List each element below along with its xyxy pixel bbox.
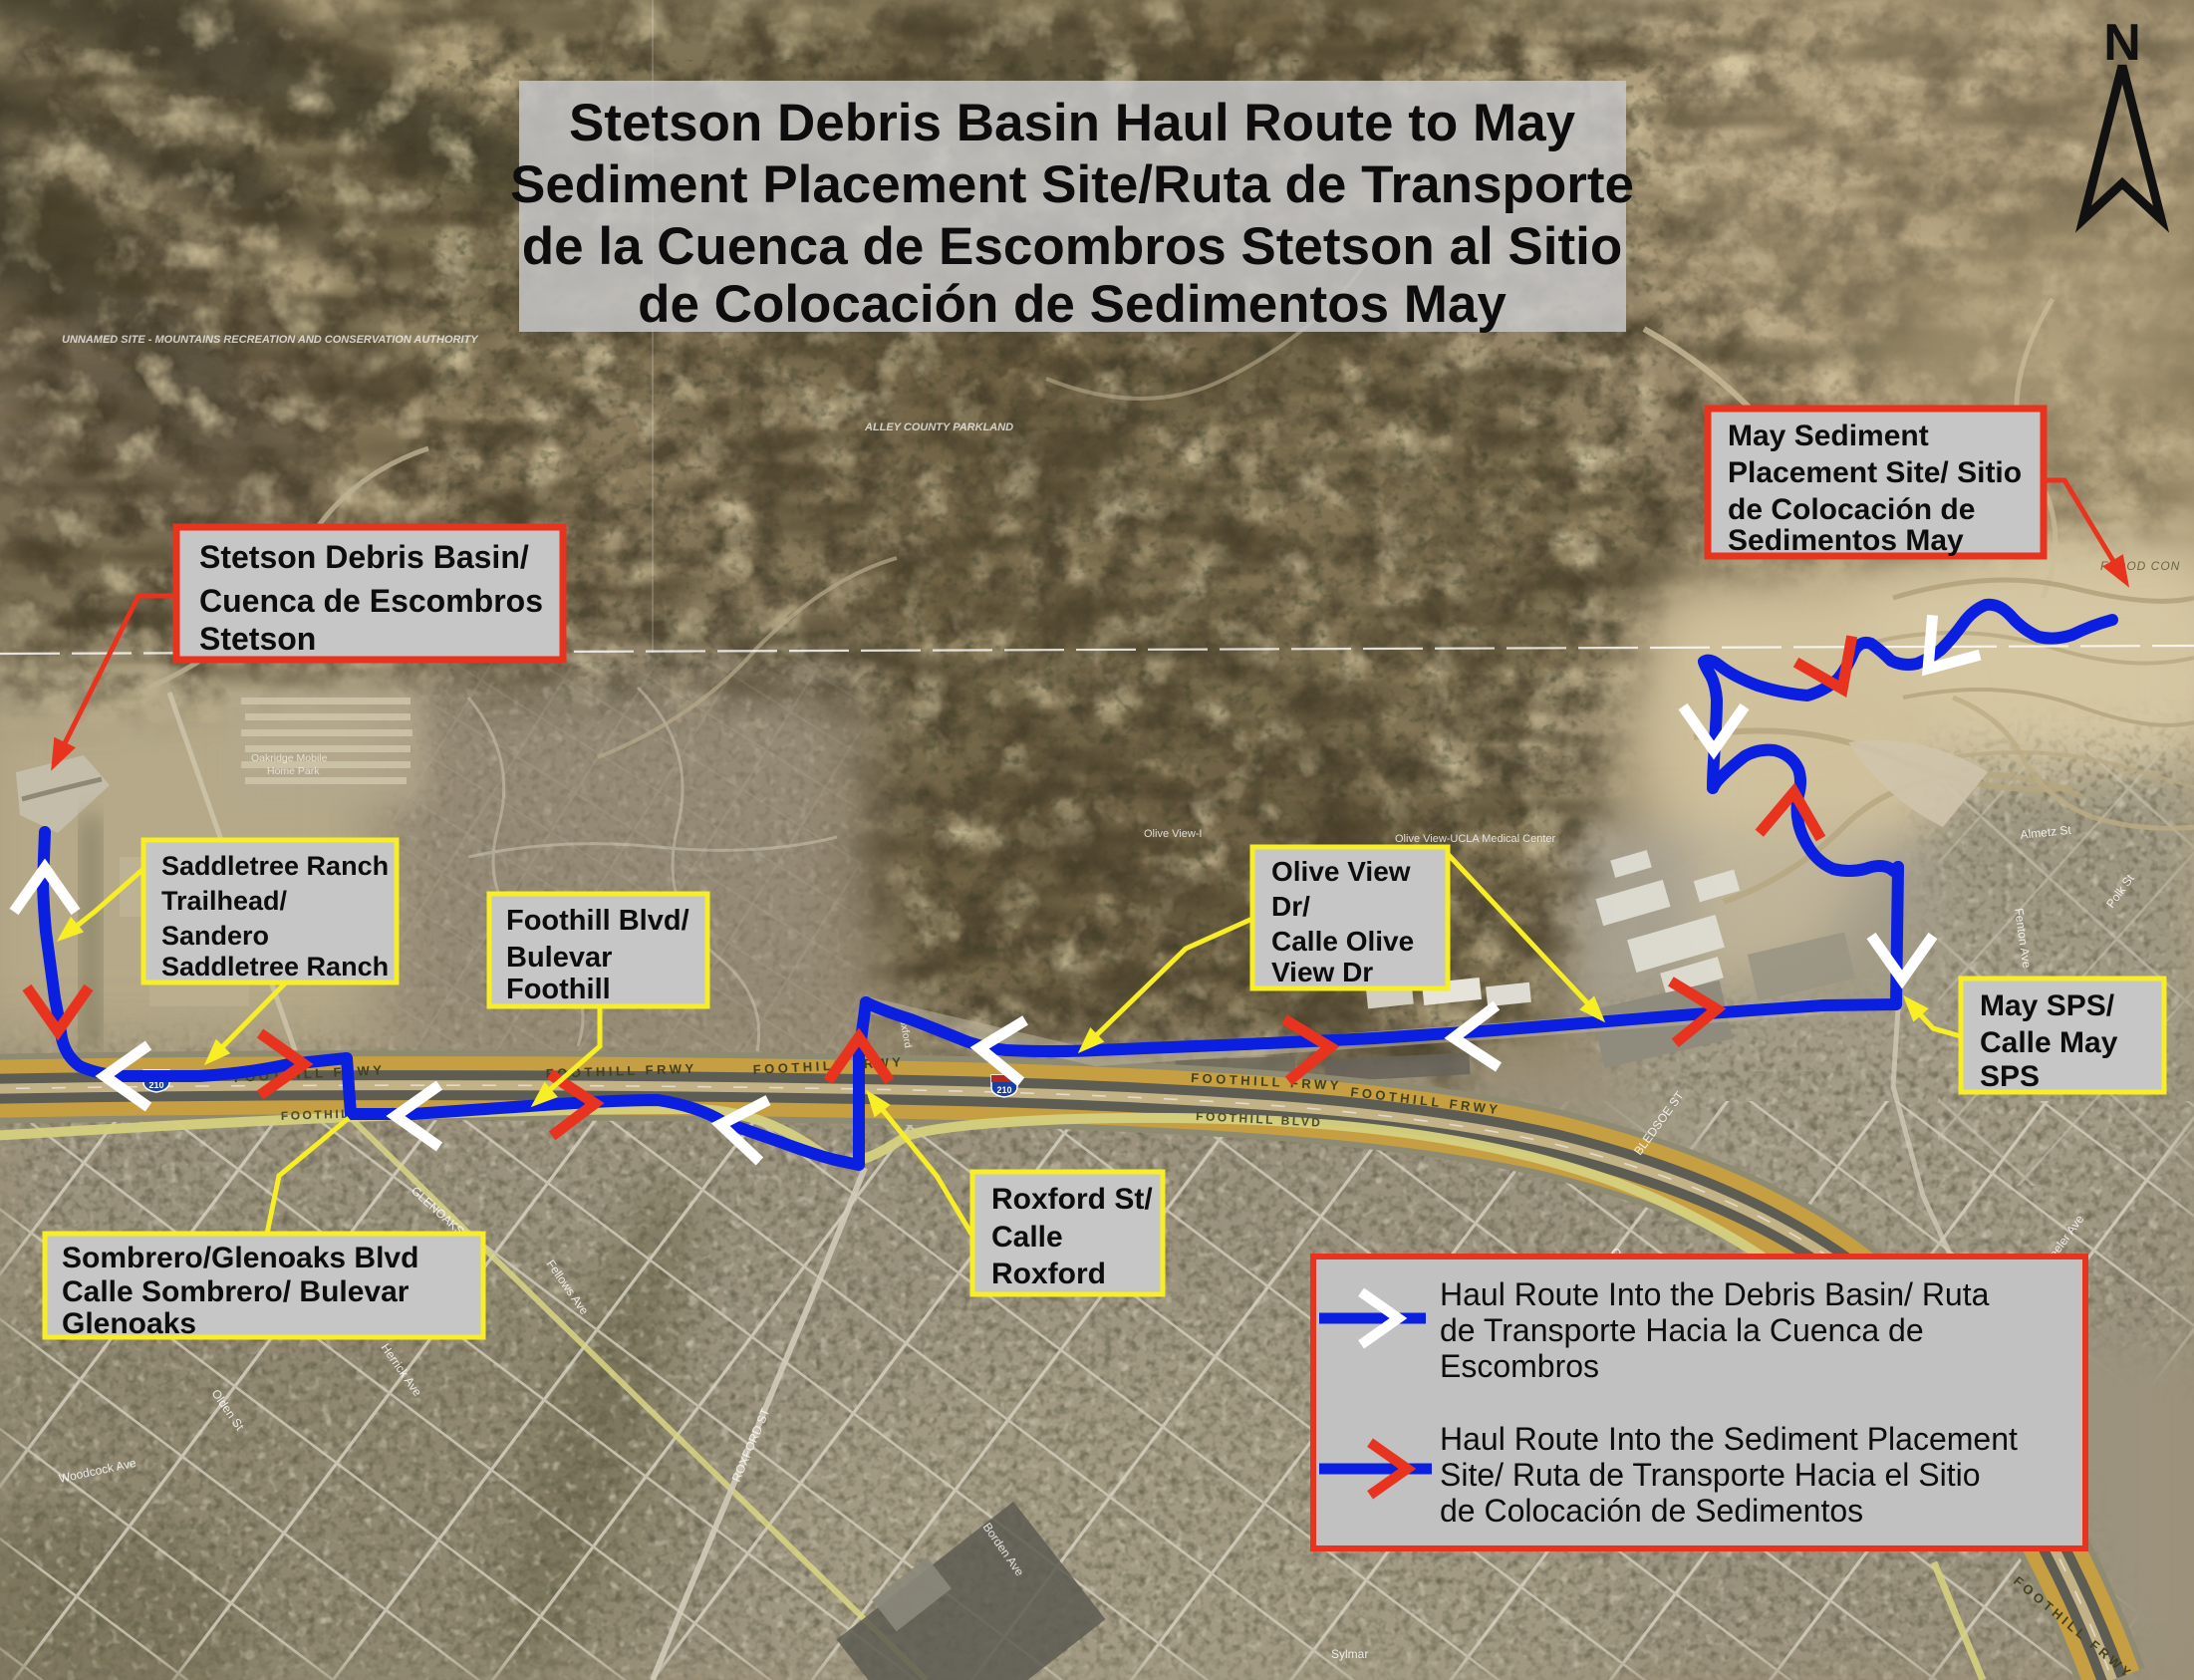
svg-text:de Colocación de Sedimentos: de Colocación de Sedimentos [1440,1493,1863,1529]
svg-text:Roxford: Roxford [991,1258,1106,1290]
svg-text:Site/ Ruta de Transporte Hacia: Site/ Ruta de Transporte Hacia el Sitio [1440,1457,1981,1493]
svg-text:View Dr: View Dr [1271,957,1373,987]
svg-text:May SPS/: May SPS/ [1980,989,2115,1022]
svg-text:Haul Route Into the Sediment P: Haul Route Into the Sediment Placement [1440,1421,2018,1457]
svg-text:UNNAMED SITE - MOUNTAINS RECRE: UNNAMED SITE - MOUNTAINS RECREATION AND … [62,334,479,346]
svg-text:Saddletree Ranch: Saddletree Ranch [161,952,389,981]
svg-text:Olive View-I: Olive View-I [1144,828,1202,840]
svg-text:Stetson Debris Basin/: Stetson Debris Basin/ [199,539,529,575]
svg-text:Haul Route Into the Debris Bas: Haul Route Into the Debris Basin/ Ruta [1440,1276,1990,1312]
svg-text:de Transporte Hacia la Cuenca: de Transporte Hacia la Cuenca de [1440,1312,1924,1348]
svg-text:Sedimentos May: Sedimentos May [1728,524,1964,557]
svg-text:de Colocación de Sedimentos Ma: de Colocación de Sedimentos May [638,275,1507,334]
svg-text:Trailhead/: Trailhead/ [161,886,288,916]
svg-text:Cuenca de Escombros: Cuenca de Escombros [199,583,543,619]
svg-text:Saddletree Ranch: Saddletree Ranch [161,851,389,881]
svg-text:Sediment Placement Site/Ruta d: Sediment Placement Site/Ruta de Transpor… [510,155,1634,214]
svg-text:Bulevar: Bulevar [506,942,612,974]
svg-text:SPS: SPS [1980,1060,2040,1093]
svg-text:Olive View-UCLA Medical Center: Olive View-UCLA Medical Center [1395,833,1556,845]
svg-text:May Sediment: May Sediment [1728,420,1929,452]
svg-text:Calle May: Calle May [1980,1026,2118,1059]
svg-text:ALLEY COUNTY PARKLAND: ALLEY COUNTY PARKLAND [864,421,1013,433]
svg-text:Calle Sombrero/ Bulevar: Calle Sombrero/ Bulevar [62,1275,410,1308]
svg-text:de la Cuenca de Escombros Stet: de la Cuenca de Escombros Stetson al Sit… [522,217,1622,276]
svg-text:Foothill: Foothill [506,974,611,1005]
svg-text:de Colocación de: de Colocación de [1728,493,1975,526]
svg-text:Placement Site/ Sitio: Placement Site/ Sitio [1728,456,2022,489]
svg-text:Calle: Calle [991,1221,1063,1254]
svg-text:Sombrero/Glenoaks Blvd: Sombrero/Glenoaks Blvd [62,1242,418,1274]
svg-text:Olive View: Olive View [1271,856,1411,887]
svg-text:Foothill Blvd/: Foothill Blvd/ [506,905,689,937]
svg-text:Home Park: Home Park [267,765,320,777]
svg-text:Sylmar: Sylmar [1331,1647,1368,1661]
svg-text:Roxford St/: Roxford St/ [991,1183,1153,1216]
svg-text:Oakridge Mobile: Oakridge Mobile [251,752,328,764]
svg-text:Stetson: Stetson [199,621,316,657]
svg-text:Escombros: Escombros [1440,1348,1599,1384]
svg-text:Dr/: Dr/ [1271,891,1310,922]
svg-text:Sandero: Sandero [161,921,269,951]
svg-text:N: N [2103,14,2141,72]
svg-text:Glenoaks: Glenoaks [62,1307,196,1340]
svg-text:Calle Olive: Calle Olive [1271,926,1414,957]
svg-text:Stetson Debris Basin Haul Rout: Stetson Debris Basin Haul Route to May [569,94,1576,152]
